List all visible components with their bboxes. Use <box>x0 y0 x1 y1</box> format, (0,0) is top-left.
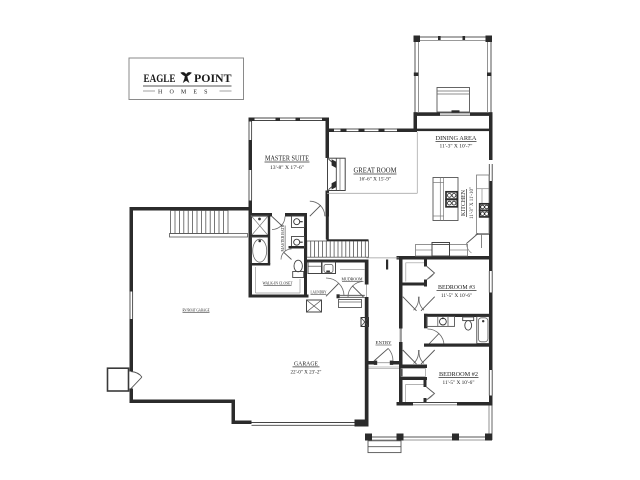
svg-text:BEDROOM #2: BEDROOM #2 <box>439 371 478 378</box>
svg-text:BEDROOM #3: BEDROOM #3 <box>438 284 475 291</box>
svg-text:HOMES: HOMES <box>158 90 213 96</box>
svg-text:DINING AREA: DINING AREA <box>436 135 477 142</box>
svg-text:MUDROOM: MUDROOM <box>342 277 363 282</box>
svg-text:ENTRY: ENTRY <box>376 340 393 345</box>
svg-text:MASTER SUITE: MASTER SUITE <box>265 155 309 163</box>
svg-text:GARAGE: GARAGE <box>294 361 318 368</box>
svg-text:11'-5" X 10'-6": 11'-5" X 10'-6" <box>441 293 472 299</box>
svg-text:GREAT ROOM: GREAT ROOM <box>354 167 398 175</box>
svg-text:MASTER BATH: MASTER BATH <box>280 225 285 252</box>
svg-text:13'-8" X 17'-6": 13'-8" X 17'-6" <box>270 165 304 171</box>
svg-text:WALK-IN CLOSET: WALK-IN CLOSET <box>263 280 293 285</box>
svg-text:EAGLE: EAGLE <box>144 73 176 85</box>
svg-text:16'-6" X 15'-9": 16'-6" X 15'-9" <box>359 177 391 183</box>
svg-text:11'-5" X 10'-6": 11'-5" X 10'-6" <box>443 380 475 386</box>
svg-text:RV/BOAT GARAGE: RV/BOAT GARAGE <box>183 307 210 312</box>
svg-text:LAUNDRY: LAUNDRY <box>311 289 327 294</box>
svg-text:22'-0" X 23'-2": 22'-0" X 23'-2" <box>291 369 322 375</box>
svg-text:11'-3" X 10'-7": 11'-3" X 10'-7" <box>440 144 473 150</box>
svg-text:POINT: POINT <box>194 73 232 85</box>
svg-text:11'-3" X 11'-10": 11'-3" X 11'-10" <box>470 187 475 219</box>
